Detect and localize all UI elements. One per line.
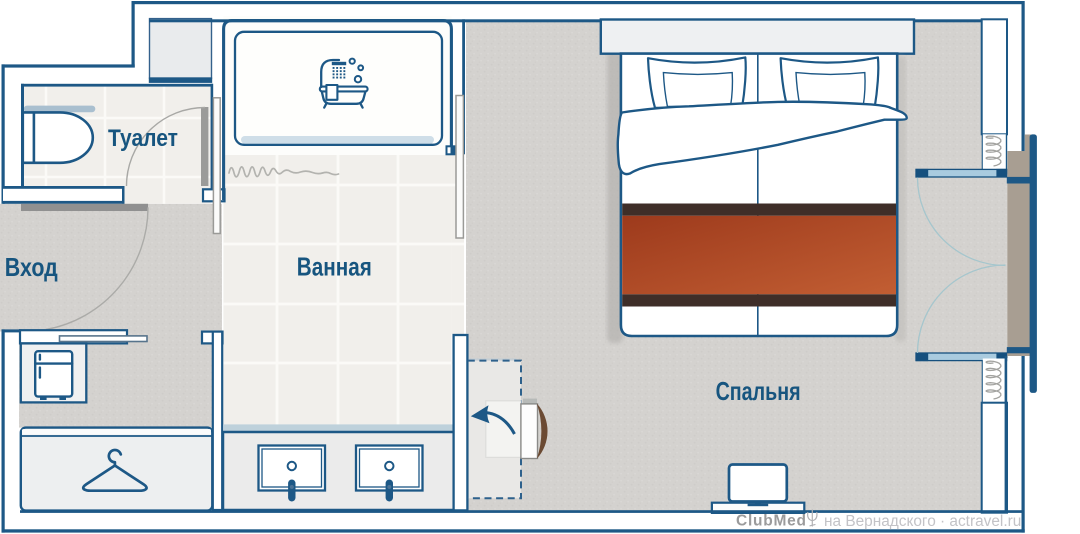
svg-text:Туалет: Туалет <box>108 126 178 152</box>
svg-text:Ванная: Ванная <box>297 252 372 282</box>
svg-text:Вход: Вход <box>5 252 58 282</box>
svg-text:Спальня: Спальня <box>716 376 801 406</box>
svg-text:на Вернадского · actravel.ru: на Вернадского · actravel.ru <box>824 513 1021 530</box>
svg-text:ClubMed: ClubMed <box>736 513 806 530</box>
